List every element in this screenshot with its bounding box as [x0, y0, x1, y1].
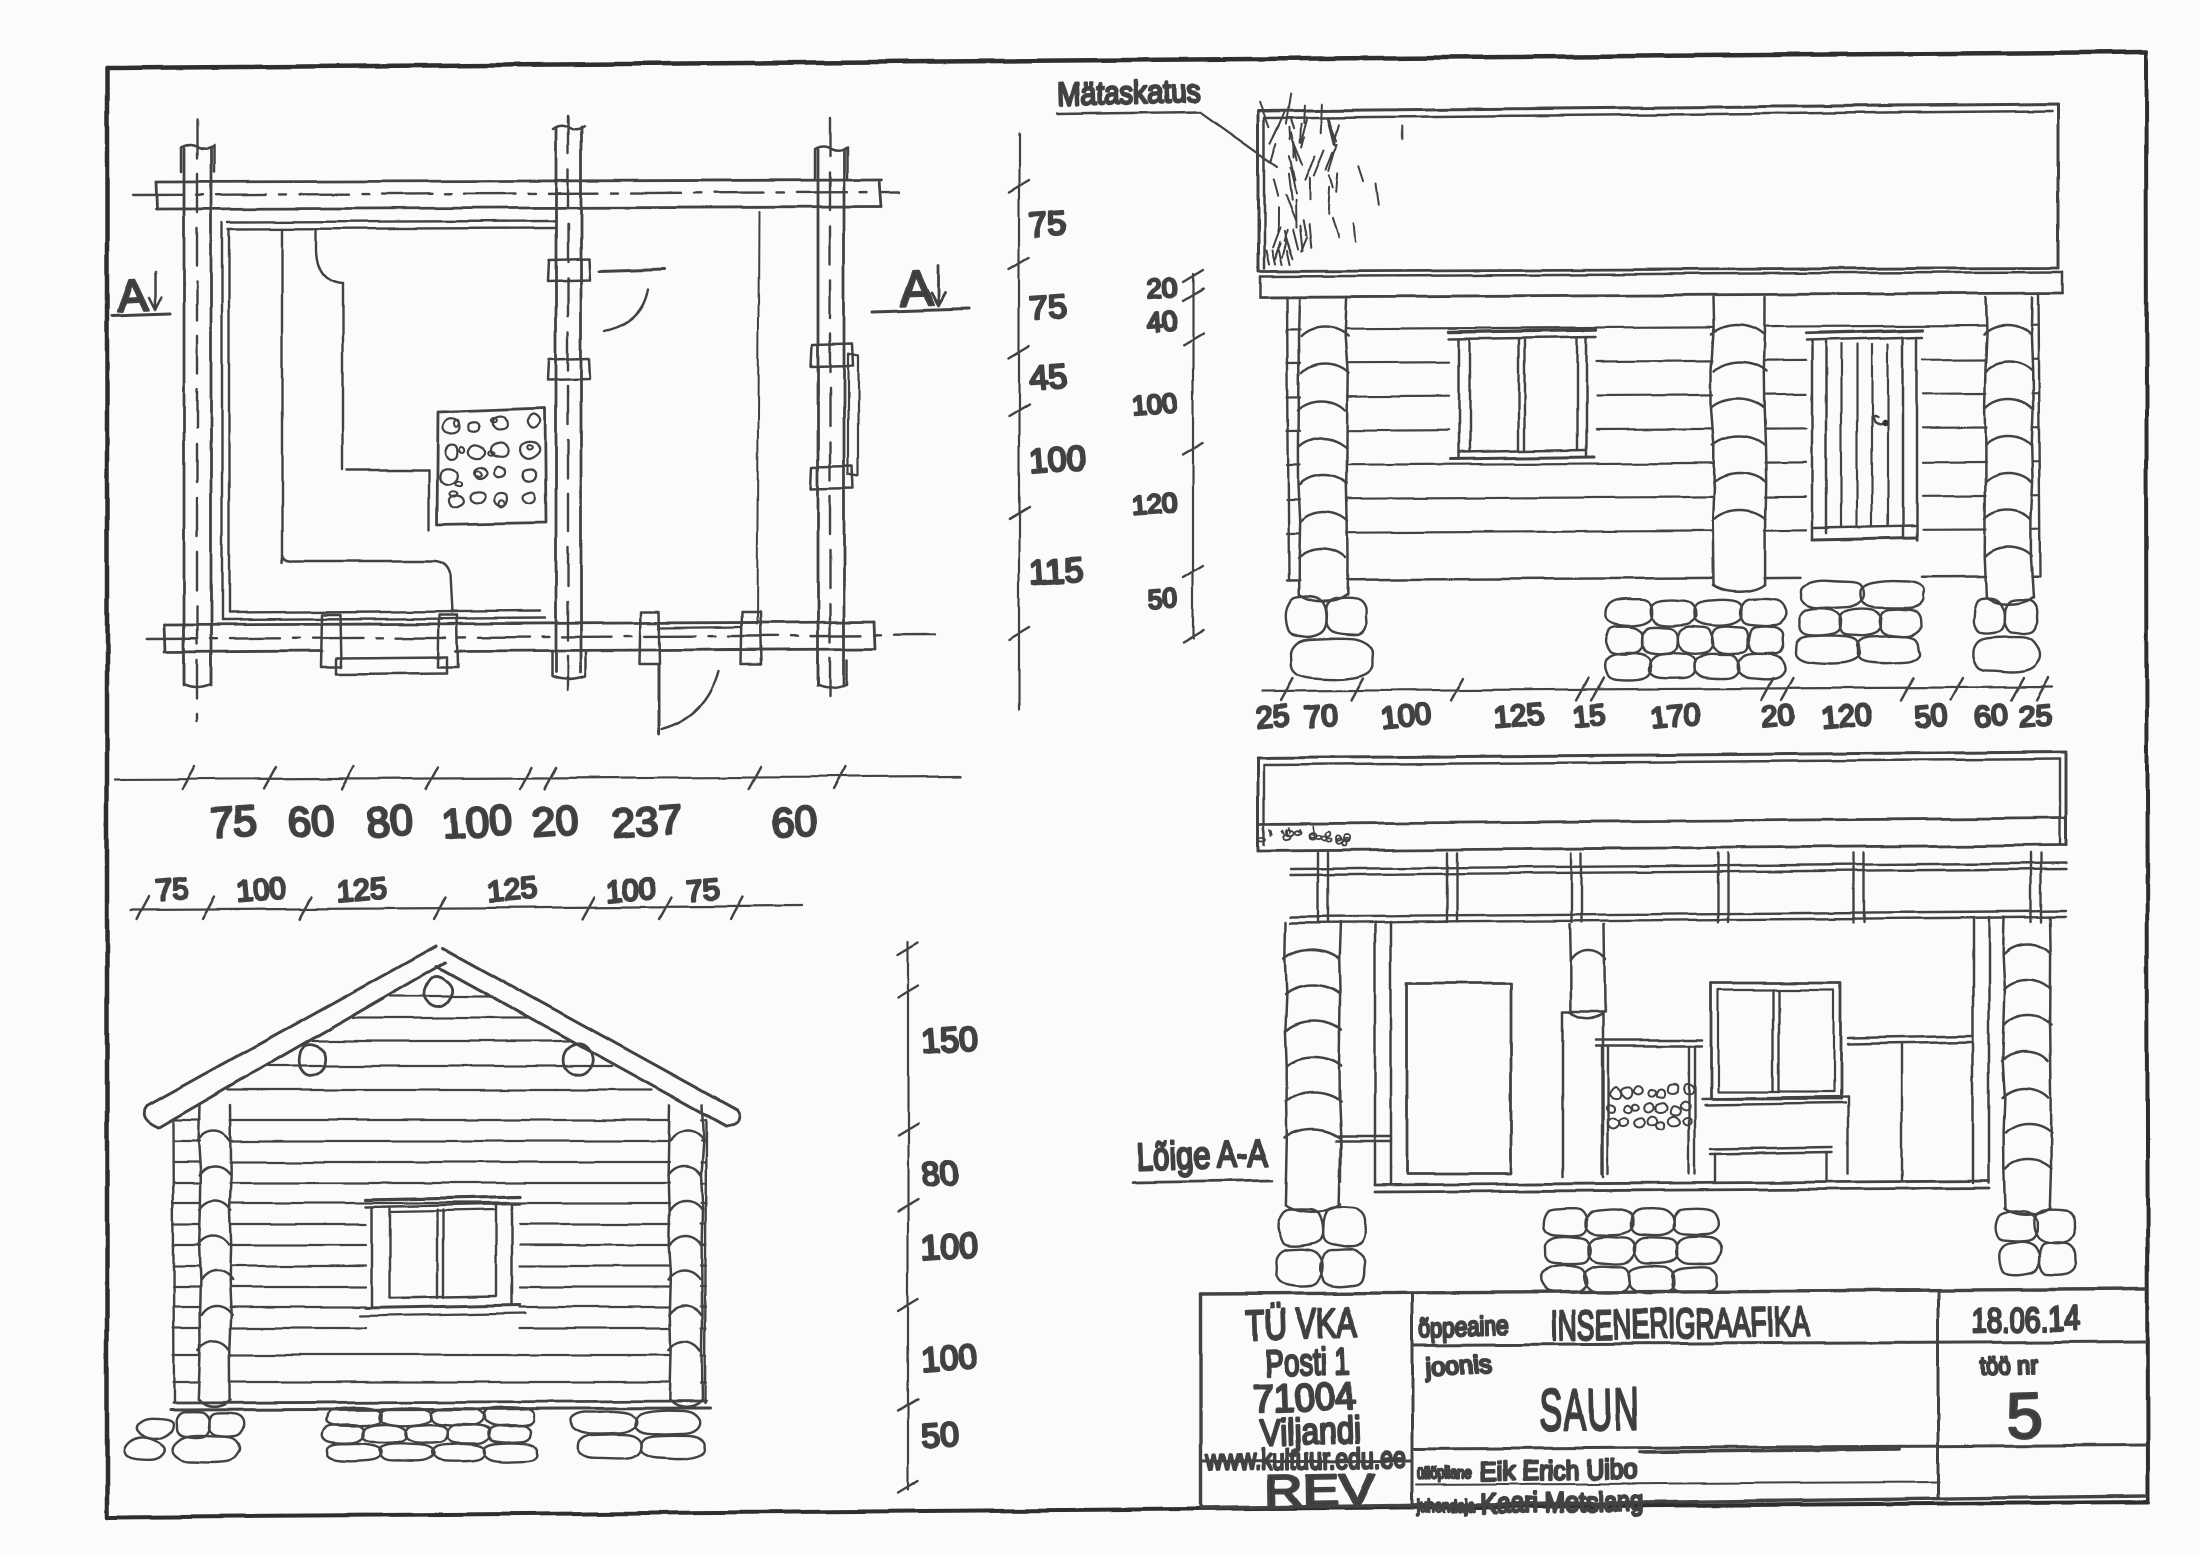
- svg-text:170: 170: [1650, 698, 1703, 735]
- svg-text:Kaari Metslang: Kaari Metslang: [1481, 1485, 1645, 1519]
- svg-text:100: 100: [235, 872, 288, 909]
- svg-text:25: 25: [2017, 699, 2053, 735]
- svg-text:50: 50: [1146, 583, 1178, 615]
- svg-text:40: 40: [1146, 306, 1178, 338]
- svg-text:80: 80: [364, 796, 414, 846]
- svg-text:INSENERIGRAAFIKA: INSENERIGRAAFIKA: [1550, 1298, 1809, 1349]
- svg-text:üliõpilane: üliõpilane: [1417, 1465, 1472, 1483]
- svg-text:125: 125: [486, 872, 539, 909]
- svg-text:juhendaja: juhendaja: [1416, 1496, 1476, 1516]
- svg-text:joonis: joonis: [1424, 1349, 1492, 1382]
- svg-text:100: 100: [1380, 698, 1433, 735]
- svg-text:125: 125: [336, 872, 389, 909]
- svg-text:Lõige A-A: Lõige A-A: [1135, 1132, 1269, 1179]
- svg-text:237: 237: [610, 796, 683, 848]
- svg-text:20: 20: [1760, 699, 1796, 735]
- svg-text:100: 100: [1028, 439, 1087, 481]
- svg-text:100: 100: [920, 1226, 979, 1268]
- svg-text:150: 150: [920, 1019, 979, 1061]
- svg-text:töö nr: töö nr: [1979, 1349, 2038, 1381]
- svg-text:100: 100: [920, 1338, 979, 1380]
- svg-text:SAUN: SAUN: [1539, 1375, 1640, 1444]
- svg-text:20: 20: [530, 796, 580, 846]
- svg-text:20: 20: [1146, 273, 1178, 305]
- svg-text:Mätaskatus: Mätaskatus: [1057, 72, 1200, 113]
- svg-text:25: 25: [1255, 699, 1291, 735]
- svg-text:50: 50: [1913, 699, 1949, 735]
- svg-text:75: 75: [209, 796, 259, 846]
- svg-text:80: 80: [920, 1153, 960, 1194]
- svg-text:75: 75: [1028, 204, 1068, 245]
- svg-text:5: 5: [2005, 1378, 2043, 1451]
- svg-text:100: 100: [1131, 388, 1178, 421]
- svg-text:60: 60: [769, 796, 819, 846]
- svg-text:120: 120: [1131, 488, 1178, 521]
- svg-text:60: 60: [286, 796, 336, 846]
- svg-text:75: 75: [154, 873, 190, 909]
- svg-text:120: 120: [1821, 698, 1874, 735]
- svg-text:A: A: [898, 260, 934, 317]
- svg-text:115: 115: [1028, 551, 1085, 593]
- svg-text:100: 100: [605, 872, 658, 909]
- svg-text:125: 125: [1493, 698, 1546, 735]
- svg-text:100: 100: [440, 796, 513, 848]
- svg-text:18.06.14: 18.06.14: [1971, 1299, 2080, 1341]
- svg-text:Eik Erich Uibo: Eik Erich Uibo: [1480, 1454, 1638, 1487]
- svg-text:45: 45: [1028, 357, 1068, 398]
- svg-text:60: 60: [1973, 699, 2009, 735]
- svg-text:15: 15: [1571, 699, 1607, 735]
- svg-text:70: 70: [1303, 699, 1339, 735]
- svg-text:50: 50: [920, 1415, 960, 1456]
- svg-text:õppeaine: õppeaine: [1418, 1310, 1509, 1343]
- svg-text:REV: REV: [1264, 1465, 1376, 1516]
- svg-text:75: 75: [685, 873, 721, 909]
- svg-text:75: 75: [1028, 287, 1068, 328]
